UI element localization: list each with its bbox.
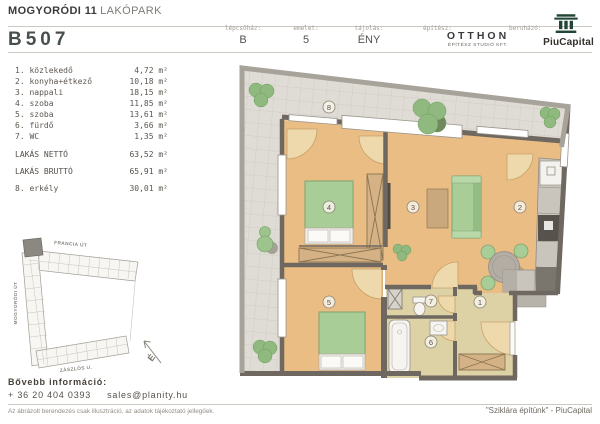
- street-label-left: MOGYORÓDI ÚT: [11, 282, 19, 325]
- north-arrow: É: [144, 341, 161, 363]
- project-title-bold: MOGYORÓDI 11: [8, 5, 97, 17]
- balcony-row: 8. erkély30,01 m²: [15, 184, 168, 193]
- entry-wardrobe: [459, 354, 505, 370]
- room-area: 13,61 m²: [129, 109, 168, 120]
- stat-orientation-value: ÉNY: [338, 34, 400, 46]
- svg-text:3: 3: [411, 203, 415, 212]
- svg-text:6: 6: [429, 338, 433, 347]
- total-gross-area: 65,91 m²: [129, 166, 168, 183]
- room-label-5: 5: [323, 296, 335, 308]
- project-title: MOGYORÓDI 11LAKÓPARK: [8, 5, 162, 17]
- classical-column-icon: [552, 14, 580, 35]
- room-area: 4,72 m²: [134, 65, 168, 76]
- street-label-bottom: ZÁSZLÓS U.: [59, 363, 92, 374]
- contact-heading: Bővebb információ:: [8, 377, 107, 387]
- svg-text:4: 4: [327, 203, 331, 212]
- room-name: 1. közlekedő: [15, 65, 73, 76]
- room-name: 3. nappali: [15, 87, 63, 98]
- room-label-1: 1: [474, 296, 486, 308]
- total-gross-row: LAKÁS BRUTTÓ65,91 m²: [15, 166, 168, 183]
- wardrobe-niche: [299, 248, 381, 262]
- room-row: 2. konyha+étkező10,18 m²: [15, 76, 168, 87]
- bathtub: [389, 320, 410, 373]
- living-room-sofa: [452, 176, 481, 238]
- footer-divider: [8, 404, 592, 405]
- room-name: 6. fürdő: [15, 120, 54, 131]
- stat-floor-label: emelet:: [276, 25, 336, 32]
- svg-text:5: 5: [327, 298, 331, 307]
- contact-phone: + 36 20 404 0393: [8, 390, 91, 400]
- toilet: [413, 297, 426, 316]
- entrance-door-leaf: [510, 322, 515, 355]
- north-letter: É: [146, 352, 158, 363]
- total-net-label: LAKÁS NETTÓ: [15, 149, 68, 166]
- room-name: 4. szoba: [15, 98, 54, 109]
- svg-text:7: 7: [429, 297, 433, 306]
- disclaimer-text: Az ábrázolt berendezés csak illusztráció…: [8, 408, 214, 415]
- contact-email: sales@planity.hu: [107, 390, 188, 400]
- developer-label: beruházó:: [509, 25, 542, 32]
- stat-staircase-value: B: [212, 34, 274, 46]
- contact-line: + 36 20 404 0393sales@planity.hu: [8, 390, 188, 400]
- svg-text:8: 8: [327, 103, 331, 112]
- unit-id: B507: [8, 29, 69, 51]
- room-row: 6. fürdő3,66 m²: [15, 120, 168, 131]
- room-area: 18,15 m²: [129, 87, 168, 98]
- room-list: 1. közlekedő4,72 m² 2. konyha+étkező10,1…: [15, 65, 168, 142]
- balcony-area: 30,01 m²: [129, 184, 168, 193]
- room-label-6: 6: [425, 336, 437, 348]
- bedroom5-bed: [319, 312, 365, 370]
- total-net-area: 63,52 m²: [129, 149, 168, 166]
- room-row: 5. szoba13,61 m²: [15, 109, 168, 120]
- site-map: FRANCIA ÚT MOGYORÓDI ÚT ZÁSZLÓS U. É: [6, 231, 174, 375]
- project-title-light: LAKÓPARK: [100, 5, 162, 17]
- total-net-row: LAKÁS NETTÓ63,52 m²: [15, 149, 168, 166]
- room-area: 11,85 m²: [129, 98, 168, 109]
- street-label-top: FRANCIA ÚT: [54, 239, 88, 249]
- room-name: 2. konyha+étkező: [15, 76, 92, 87]
- stat-floor: emelet: 5: [276, 25, 336, 46]
- room-name: 7. WC: [15, 131, 39, 142]
- totals-block: LAKÁS NETTÓ63,52 m² LAKÁS BRUTTÓ65,91 m²: [15, 149, 168, 183]
- washbasin: [430, 321, 447, 335]
- total-gross-label: LAKÁS BRUTTÓ: [15, 166, 73, 183]
- footer-slogan: "Sziklára építünk" - PiuCapital: [486, 406, 592, 415]
- room-label-8: 8: [323, 101, 335, 113]
- stat-orientation-label: tájolás:: [338, 25, 400, 32]
- room-row: 1. közlekedő4,72 m²: [15, 65, 168, 76]
- highlighted-unit: [23, 238, 43, 257]
- room-area: 10,18 m²: [129, 76, 168, 87]
- header-divider-bottom: [8, 52, 592, 53]
- wardrobe-bedroom4: [367, 174, 383, 260]
- stat-staircase: lépcsőház: B: [212, 25, 274, 46]
- architect-subname: ÉPÍTÉSZ STUDIÓ KFT.: [430, 43, 526, 48]
- svg-text:1: 1: [478, 298, 482, 307]
- stat-staircase-label: lépcsőház:: [212, 25, 274, 32]
- room-label-7: 7: [425, 295, 437, 307]
- stat-floor-value: 5: [276, 34, 336, 46]
- balcony-label: 8. erkély: [15, 184, 58, 193]
- coffee-table: [427, 189, 448, 228]
- room-row: 3. nappali18,15 m²: [15, 87, 168, 98]
- room-label-3: 3: [407, 201, 419, 213]
- svg-text:2: 2: [518, 203, 522, 212]
- room-area: 3,66 m²: [134, 120, 168, 131]
- datasheet-page: MOGYORÓDI 11LAKÓPARK B507 lépcsőház: B e…: [0, 0, 600, 424]
- room-row: 7. WC1,35 m²: [15, 131, 168, 142]
- developer-brand: PiuCapital: [520, 37, 594, 48]
- stat-orientation: tájolás: ÉNY: [338, 25, 400, 46]
- room-label-2: 2: [514, 201, 526, 213]
- duct-shaft: [388, 289, 402, 309]
- building-outline: [22, 250, 138, 368]
- room-row: 4. szoba11,85 m²: [15, 98, 168, 109]
- room-name: 5. szoba: [15, 109, 54, 120]
- room-area: 1,35 m²: [134, 131, 168, 142]
- floor-plan: 1 2 3 4 5 6 7: [225, 55, 595, 395]
- room-label-4: 4: [323, 201, 335, 213]
